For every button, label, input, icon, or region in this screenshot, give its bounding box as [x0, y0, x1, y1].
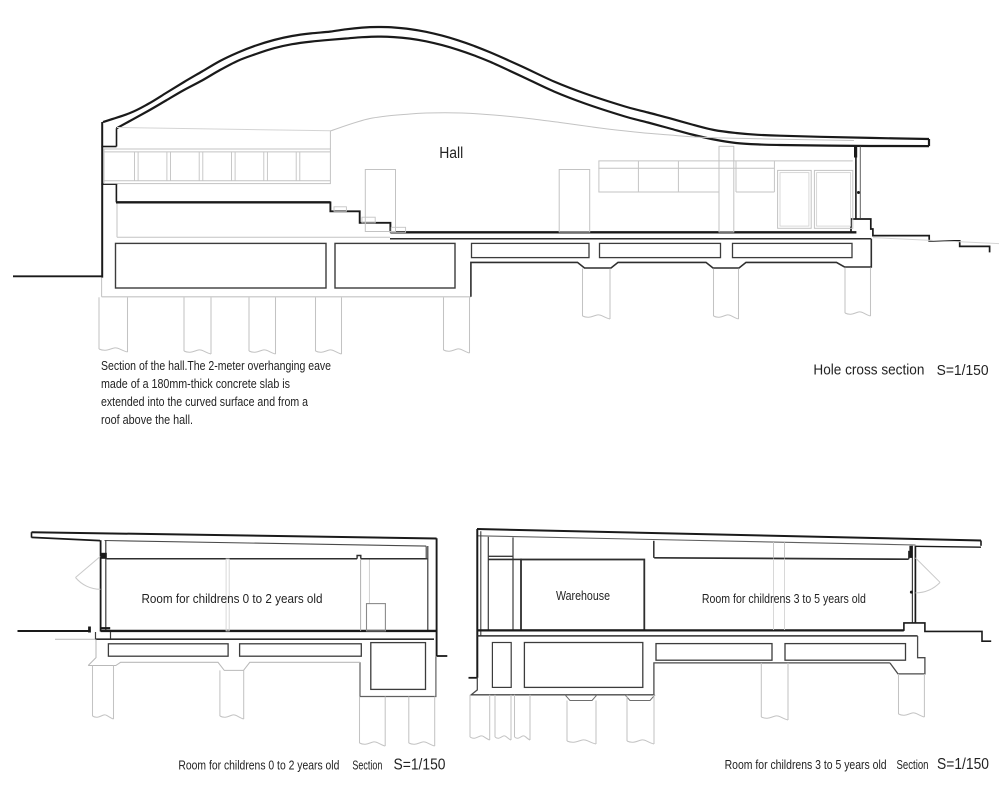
- svg-text:Warehouse: Warehouse: [556, 588, 610, 603]
- svg-text:roof above the hall.: roof above the hall.: [101, 412, 193, 427]
- svg-text:Room for childrens 0 to 2 year: Room for childrens 0 to 2 years old: [178, 757, 339, 772]
- svg-text:Hole cross section: Hole cross section: [813, 362, 924, 379]
- svg-text:extended into the curved surfa: extended into the curved surface and fro…: [101, 394, 309, 409]
- svg-text:S=1/150: S=1/150: [937, 756, 989, 773]
- svg-text:Section of the hall.The 2-mete: Section of the hall.The 2-meter overhang…: [101, 358, 331, 373]
- svg-text:Room for childrens 3 to 5 year: Room for childrens 3 to 5 years old: [702, 591, 866, 606]
- svg-text:Section: Section: [352, 757, 382, 772]
- svg-text:S=1/150: S=1/150: [937, 363, 989, 379]
- svg-text:Room for childrens 3 to 5 year: Room for childrens 3 to 5 years old: [725, 757, 887, 772]
- svg-text:Room for childrens 0 to 2 year: Room for childrens 0 to 2 years old: [142, 591, 323, 606]
- svg-text:made of a 180mm-thick concrete: made of a 180mm-thick concrete slab is: [101, 376, 290, 391]
- svg-text:Hall: Hall: [439, 145, 463, 162]
- svg-text:S=1/150: S=1/150: [394, 756, 446, 773]
- svg-text:Section: Section: [897, 757, 929, 772]
